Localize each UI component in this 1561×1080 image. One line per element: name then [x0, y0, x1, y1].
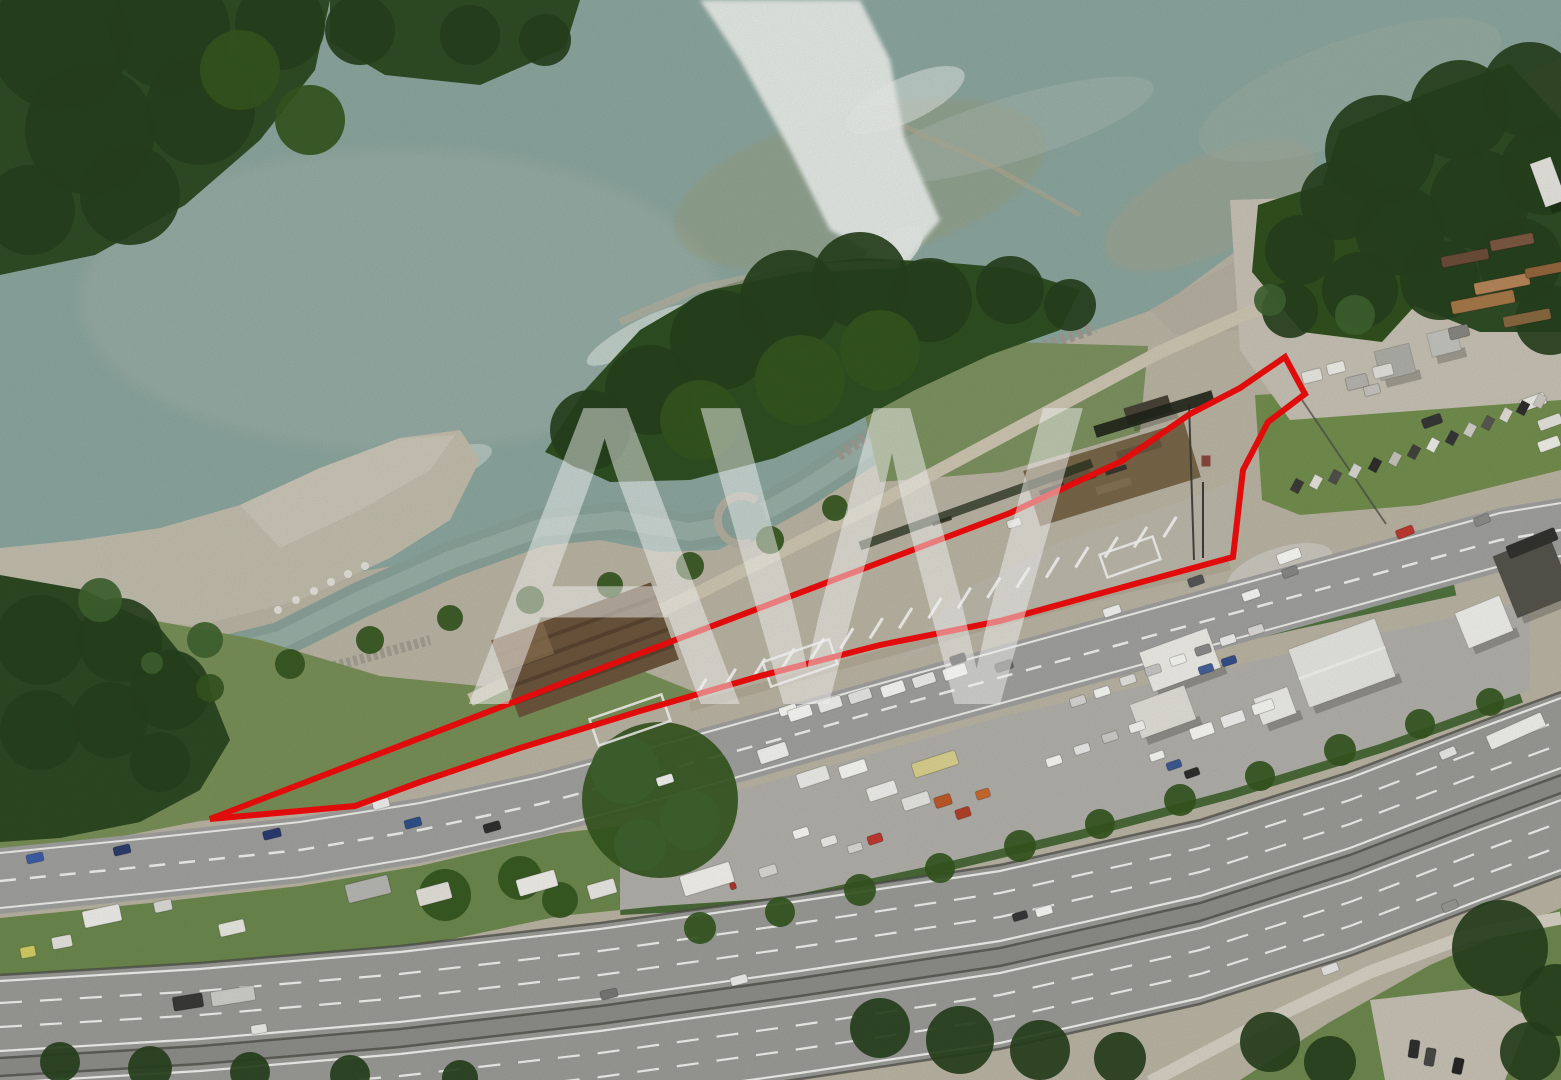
aerial-photo-screenshot: AW AW — [0, 0, 1561, 1080]
aerial-scene: AW AW — [0, 0, 1561, 1080]
photo-grain-overlay — [0, 0, 1561, 1080]
